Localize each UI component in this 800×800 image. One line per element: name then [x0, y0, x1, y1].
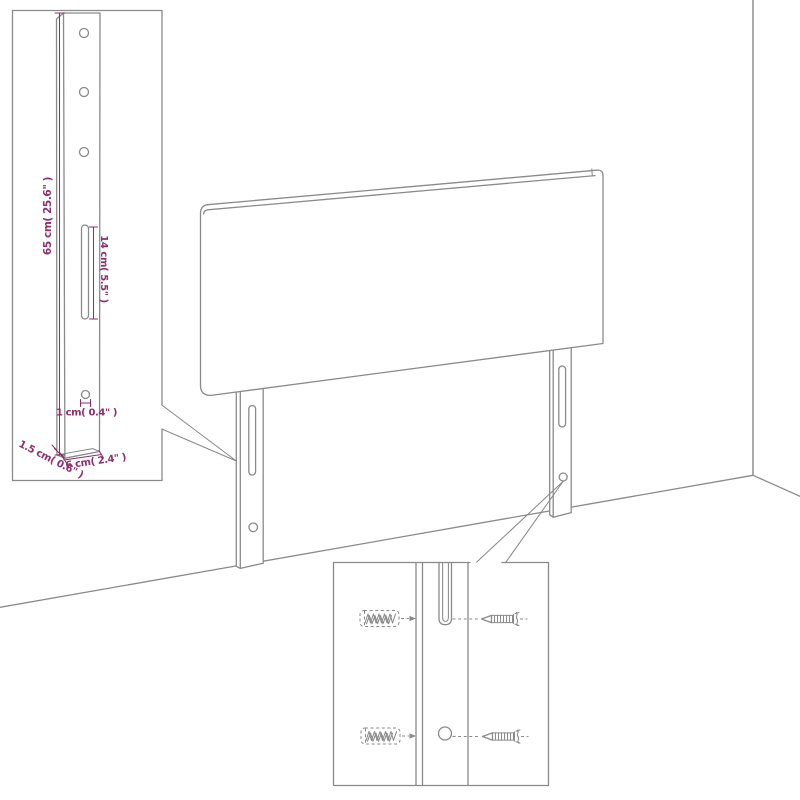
leg-detail-inset: 65 cm( 25.6" ) 14 cm( 5.5" ) 1 cm( 0.4" … — [13, 11, 163, 481]
inset1-leader-lines — [162, 405, 237, 461]
fastener-detail-inset — [334, 563, 549, 786]
panel-outline — [201, 170, 604, 395]
dimension-label-hole-diameter: 1 cm( 0.4" ) — [56, 408, 117, 419]
dimension-label-slot-length: 14 cm( 5.5" ) — [98, 235, 109, 303]
headboard-dimension-diagram: 65 cm( 25.6" ) 14 cm( 5.5" ) 1 cm( 0.4" … — [0, 0, 800, 800]
right-leg-slot — [559, 366, 566, 427]
left-leg-hole — [249, 523, 258, 532]
inset2-background — [334, 563, 549, 786]
headboard-panel — [201, 169, 604, 396]
right-leg-hole — [559, 473, 567, 481]
dimension-label-leg-height: 65 cm( 25.6" ) — [42, 177, 54, 255]
floor-line-right — [753, 475, 800, 496]
panel-top-right-cap — [592, 169, 593, 176]
diagram-canvas: 65 cm( 25.6" ) 14 cm( 5.5" ) 1 cm( 0.4" … — [0, 0, 800, 800]
left-leg — [236, 385, 263, 568]
left-leg-slot — [249, 406, 256, 476]
